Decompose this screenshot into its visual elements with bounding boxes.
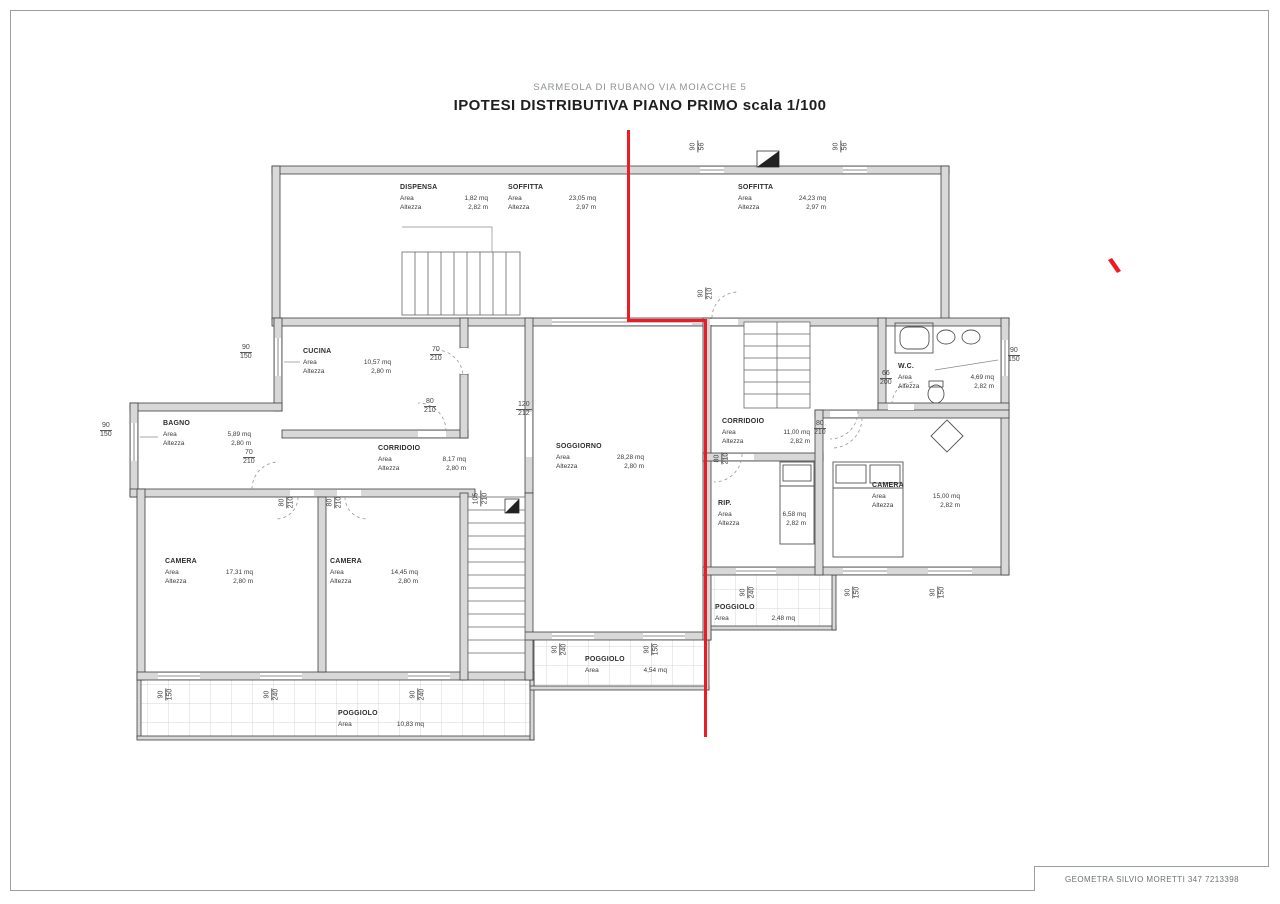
area-label: Area	[330, 568, 344, 577]
area-value: 2,48 mq	[772, 614, 796, 623]
dim-bagno-window: 90150	[98, 422, 114, 439]
pillow	[836, 465, 866, 483]
height-label: Altezza	[722, 437, 743, 446]
height-value: 2,80 m	[624, 462, 644, 471]
dim-corridoio-door: 80210	[422, 398, 438, 415]
area-label: Area	[378, 455, 392, 464]
dim-soggiorno-opening: 120212	[516, 401, 532, 418]
room-label-corridoio-dx: CORRIDOIO Area11,00 mq Altezza2,82 m	[722, 417, 810, 446]
height-label: Altezza	[378, 464, 399, 473]
area-value: 24,23 mq	[799, 194, 826, 203]
area-value: 6,58 mq	[783, 510, 807, 519]
red-tick	[1108, 258, 1121, 273]
room-name: W.C.	[898, 362, 994, 372]
room-label-soggiorno: SOGGIORNO Area28,28 mq Altezza2,80 m	[556, 442, 644, 471]
room-name: SOFFITTA	[738, 183, 826, 193]
dim-cucina-window: 90150	[238, 344, 254, 361]
area-label: Area	[718, 510, 732, 519]
area-value: 4,69 mq	[971, 373, 995, 382]
room-label-cucina: CUCINA Area10,57 mq Altezza2,80 m	[303, 347, 391, 376]
pillow	[783, 465, 811, 481]
height-value: 2,82 m	[790, 437, 810, 446]
area-label: Area	[303, 358, 317, 367]
area-label: Area	[738, 194, 752, 203]
room-label-bagno: BAGNO Area5,89 mq Altezza2,80 m	[163, 419, 251, 448]
room-name: POGGIOLO	[715, 603, 795, 613]
area-label: Area	[556, 453, 570, 462]
dim-bagno-door: 70210	[241, 449, 257, 466]
height-label: Altezza	[898, 382, 919, 391]
room-name: SOGGIORNO	[556, 442, 644, 452]
room-name: BAGNO	[163, 419, 251, 429]
height-value: 2,80 m	[231, 439, 251, 448]
room-name: SOFFITTA	[508, 183, 596, 193]
area-label: Area	[872, 492, 886, 501]
room-name: CUCINA	[303, 347, 391, 357]
room-name: CORRIDOIO	[378, 444, 466, 454]
height-label: Altezza	[718, 519, 739, 528]
area-label: Area	[163, 430, 177, 439]
height-label: Altezza	[508, 203, 529, 212]
dim-camera3-door: 80210	[812, 420, 828, 437]
dim-stair-door: 90210	[697, 286, 714, 302]
height-value: 2,97 m	[806, 203, 826, 212]
dim-wc-window: 90150	[1006, 347, 1022, 364]
dim-stairwell: 105210	[472, 491, 489, 507]
author-text: GEOMETRA SILVIO MORETTI 347 7213398	[1065, 875, 1239, 884]
sink	[962, 330, 980, 344]
dim-soggiorno-door: 90240	[551, 642, 568, 658]
room-label-soffitta-1: SOFFITTA Area23,05 mq Altezza2,97 m	[508, 183, 596, 212]
room-name: CAMERA	[165, 557, 253, 567]
dim-camera2-door: 80210	[326, 495, 343, 511]
area-label: Area	[722, 428, 736, 437]
title-block: GEOMETRA SILVIO MORETTI 347 7213398	[1034, 866, 1269, 891]
room-name: CORRIDOIO	[722, 417, 810, 427]
dim-camera3-window-2: 90150	[929, 585, 946, 601]
room-name: CAMERA	[872, 481, 960, 491]
height-value: 2,97 m	[576, 203, 596, 212]
room-label-camera-3: CAMERA Area15,00 mq Altezza2,82 m	[872, 481, 960, 510]
balcony-label-right: POGGIOLO Area2,48 mq	[715, 603, 795, 623]
area-value: 17,31 mq	[226, 568, 253, 577]
height-label: Altezza	[556, 462, 577, 471]
height-label: Altezza	[872, 501, 893, 510]
dim-camera3-window-1: 90150	[844, 585, 861, 601]
height-value: 2,82 m	[974, 382, 994, 391]
height-value: 2,80 m	[446, 464, 466, 473]
room-label-wc: W.C. Area4,69 mq Altezza2,82 m	[898, 362, 994, 391]
area-value: 23,05 mq	[569, 194, 596, 203]
area-label: Area	[585, 666, 599, 675]
height-label: Altezza	[163, 439, 184, 448]
armchair	[931, 420, 963, 452]
area-value: 8,17 mq	[443, 455, 467, 464]
room-name: POGGIOLO	[338, 709, 424, 719]
balcony-label-left: POGGIOLO Area10,83 mq	[338, 709, 424, 729]
dim-rip-door: 80210	[713, 451, 730, 467]
room-name: CAMERA	[330, 557, 418, 567]
height-value: 2,80 m	[371, 367, 391, 376]
dim-camera1-balcony-door: 90240	[263, 687, 280, 703]
height-value: 2,80 m	[398, 577, 418, 586]
room-label-rip: RIP. Area6,58 mq Altezza2,82 m	[718, 499, 806, 528]
dim-wc-door: 66200	[878, 370, 894, 387]
height-value: 2,82 m	[940, 501, 960, 510]
height-value: 2,82 m	[468, 203, 488, 212]
height-value: 2,82 m	[786, 519, 806, 528]
dim-camera1-door: 80210	[278, 495, 295, 511]
area-value: 15,00 mq	[933, 492, 960, 501]
height-label: Altezza	[738, 203, 759, 212]
area-label: Area	[715, 614, 729, 623]
area-value: 10,57 mq	[364, 358, 391, 367]
sink	[937, 330, 955, 344]
height-label: Altezza	[303, 367, 324, 376]
area-label: Area	[508, 194, 522, 203]
room-label-camera-1: CAMERA Area17,31 mq Altezza2,80 m	[165, 557, 253, 586]
walls	[130, 166, 1009, 680]
dim-roof-window-2: 9056	[832, 141, 849, 153]
dim-soggiorno-window: 90150	[643, 642, 660, 658]
area-value: 28,28 mq	[617, 453, 644, 462]
room-name: DISPENSA	[400, 183, 488, 193]
room-label-camera-2: CAMERA Area14,45 mq Altezza2,80 m	[330, 557, 418, 586]
area-label: Area	[165, 568, 179, 577]
floorplan-page: SARMEOLA DI RUBANO VIA MOIACCHE 5 IPOTES…	[0, 0, 1280, 904]
area-label: Area	[338, 720, 352, 729]
balcony-label-middle: POGGIOLO Area4,54 mq	[585, 655, 667, 675]
room-label-dispensa: DISPENSA Area1,82 mq Altezza2,82 m	[400, 183, 488, 212]
area-label: Area	[400, 194, 414, 203]
room-label-soffitta-2: SOFFITTA Area24,23 mq Altezza2,97 m	[738, 183, 826, 212]
area-label: Area	[898, 373, 912, 382]
dim-camera2-balcony-door: 90240	[409, 687, 426, 703]
area-value: 11,00 mq	[783, 428, 810, 437]
area-value: 4,54 mq	[644, 666, 668, 675]
height-label: Altezza	[330, 577, 351, 586]
bathtub-inner	[900, 327, 929, 349]
dim-balcony-door-right: 90240	[739, 585, 756, 601]
height-value: 2,80 m	[233, 577, 253, 586]
area-value: 10,83 mq	[397, 720, 424, 729]
room-name: RIP.	[718, 499, 806, 509]
wall-openings	[131, 167, 1008, 679]
window-lines	[134, 170, 1005, 676]
dim-cucina-door: 70210	[428, 346, 444, 363]
room-label-corridoio-sx: CORRIDOIO Area8,17 mq Altezza2,80 m	[378, 444, 466, 473]
height-label: Altezza	[165, 577, 186, 586]
area-value: 5,89 mq	[228, 430, 252, 439]
dim-roof-window-1: 9056	[689, 141, 706, 153]
bathtub	[895, 323, 933, 353]
area-value: 14,45 mq	[391, 568, 418, 577]
area-value: 1,82 mq	[465, 194, 489, 203]
dim-camera1-window: 90150	[157, 687, 174, 703]
height-label: Altezza	[400, 203, 421, 212]
